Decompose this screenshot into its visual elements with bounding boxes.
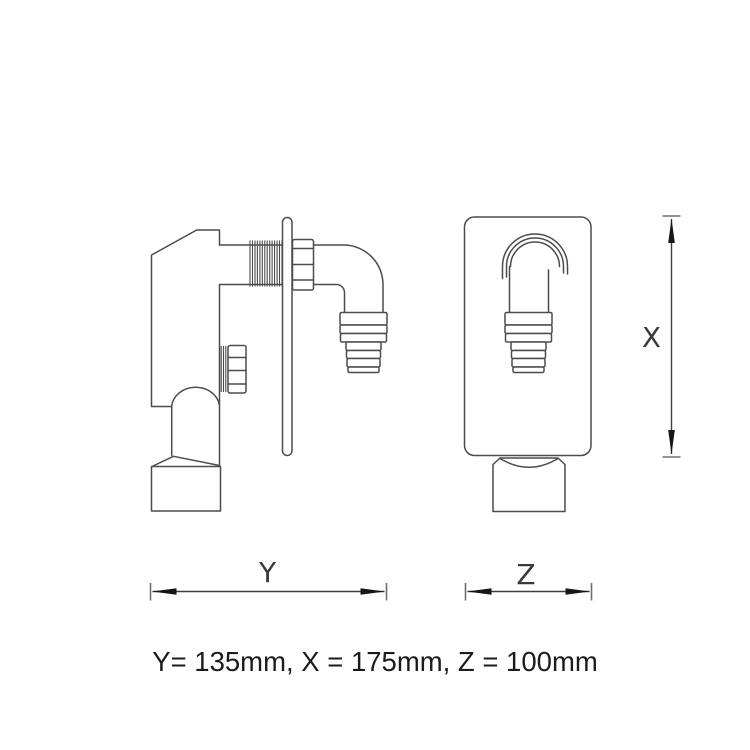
wall-plate [283,218,293,456]
dimension-x-arrow-bottom [668,430,675,455]
dimension-x-arrow-top [668,219,675,244]
inlet-pipe [220,245,283,285]
valve-body [152,230,220,465]
trap-dome [172,387,220,455]
bottom-outlet-front [493,458,565,512]
elbow [314,245,384,313]
dimension-y-arrow-left [152,588,177,595]
dimension-y-label: Y [258,556,277,589]
drawing-canvas: X Y Z [0,0,750,750]
hose-barb-front [505,313,552,373]
dimension-x-label: X [642,321,661,354]
dimension-z-arrow-right [566,588,591,595]
technical-drawing-page: X Y Z Y= 135mm, X = 175mm, Z = 100mm [0,0,750,750]
dimension-z-arrow-left [467,588,492,595]
dimension-z-label: Z [516,558,535,591]
outlet-taper [152,456,220,466]
cap-nut [221,346,246,394]
hose-barb-side [340,313,387,373]
bottom-outlet-side [152,467,221,512]
backnut [293,240,314,291]
dimension-z: Z [466,558,592,601]
dimension-y-arrow-right [361,588,386,595]
dimension-x: X [642,216,681,457]
side-view [152,218,388,512]
front-view [465,217,592,512]
hose-loop [503,234,568,279]
dimension-y: Y [151,556,387,601]
pipe-threads [250,241,282,287]
hose-tube [510,267,549,313]
dimensions-caption: Y= 135mm, X = 175mm, Z = 100mm [0,646,750,678]
